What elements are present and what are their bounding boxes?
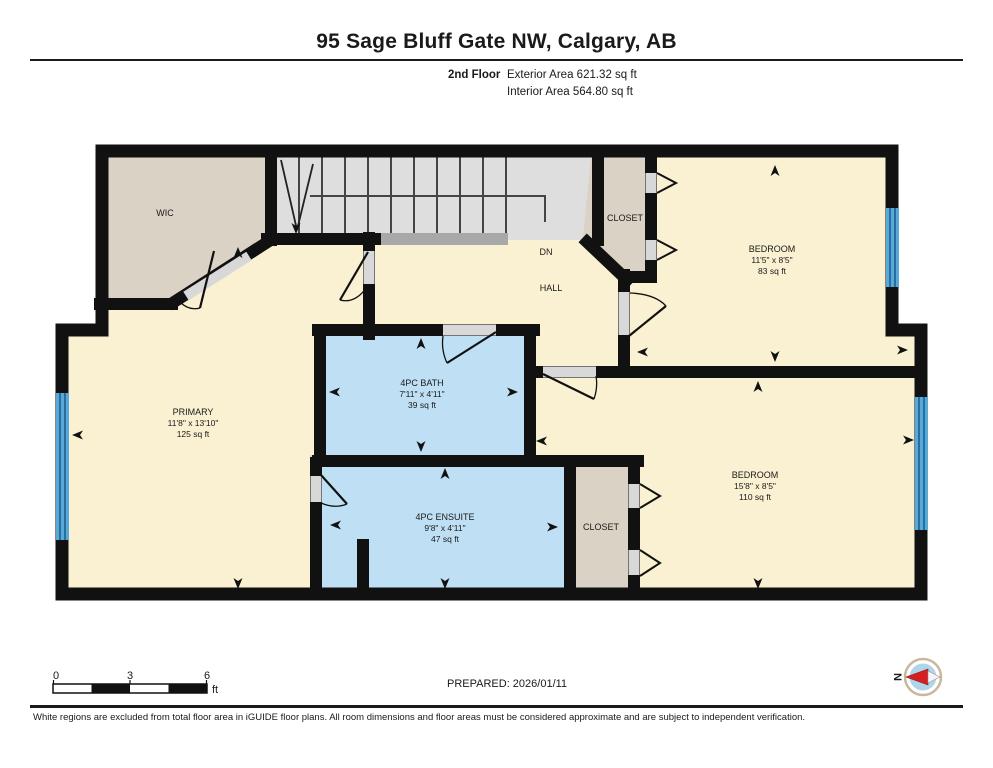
label-dn: DN [540,247,553,257]
label-bedroom-top-name: BEDROOM [749,244,796,254]
label-ensuite-name: 4PC ENSUITE [415,512,474,522]
label-ensuite-area: 47 sq ft [431,534,460,544]
label-bedroom-bottom-area: 110 sq ft [739,492,772,502]
compass-north-label: N [891,673,903,681]
window-primary [56,393,69,540]
label-bath-area: 39 sq ft [408,400,437,410]
label-bedroom-bottom-dims: 15'8" x 8'5" [734,481,776,491]
label-bedroom-top-dims: 11'5" x 8'5" [751,255,792,265]
footer-divider [30,705,963,708]
label-ensuite-dims: 9'8" x 4'11" [424,523,465,533]
label-hall: HALL [540,283,563,293]
label-closet-bottom: CLOSET [583,522,620,532]
floor-plan-svg: WIC CLOSET DN HALL BEDROOM 11'5" x 8'5" … [0,0,993,768]
prepared-date: PREPARED: 2026/01/11 [447,678,567,690]
label-bath-name: 4PC BATH [400,378,443,388]
stair-landing-strip [369,233,508,245]
disclaimer-text: White regions are excluded from total fl… [33,712,963,723]
label-primary-dims: 11'8" x 13'10" [168,418,219,428]
compass-icon: N [891,659,941,695]
label-bedroom-top-area: 83 sq ft [758,266,787,276]
label-wic: WIC [156,208,174,218]
window-bedroom-top [886,208,899,287]
scale-bar: 0 3 6 ft [53,670,218,696]
window-bedroom-bottom [915,397,928,530]
label-bath-dims: 7'11" x 4'11" [399,389,444,399]
scale-unit: ft [212,684,218,696]
label-primary-name: PRIMARY [173,407,214,417]
label-primary-area: 125 sq ft [177,429,210,439]
floorplan-page: 95 Sage Bluff Gate NW, Calgary, AB 2nd F… [0,0,993,768]
label-closet-top: CLOSET [607,213,644,223]
label-bedroom-bottom-name: BEDROOM [732,470,779,480]
